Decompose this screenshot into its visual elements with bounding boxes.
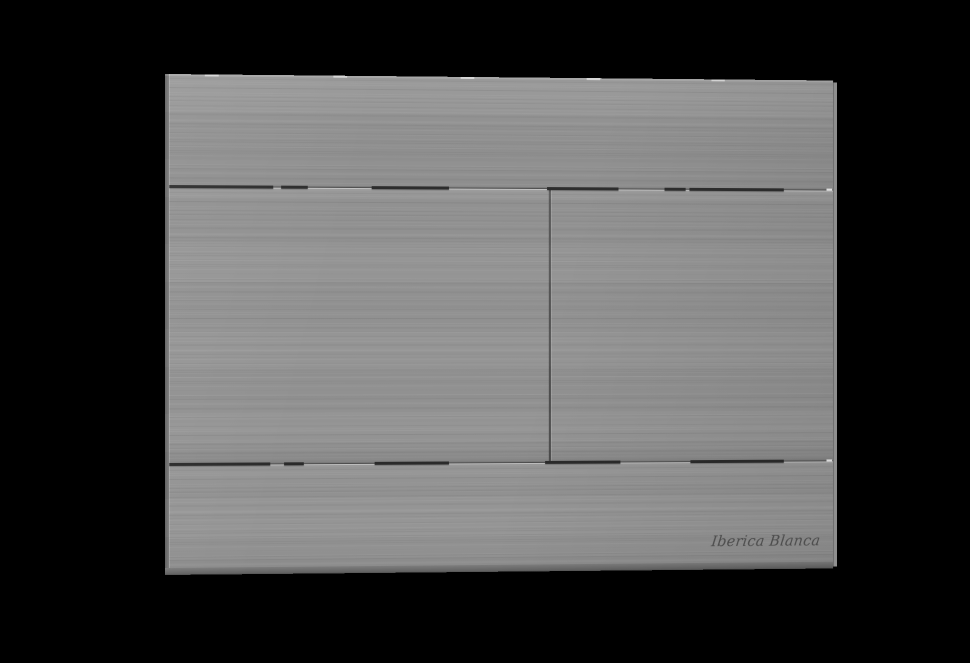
brand-logo: Iberica Blanca	[710, 532, 821, 551]
groove-gap-segment	[372, 186, 449, 189]
groove-gap-segment	[375, 461, 449, 464]
plate-top-rail	[165, 74, 833, 189]
groove-gap-segment	[167, 462, 270, 466]
plate-scene: Iberica Blanca	[165, 74, 853, 575]
groove-end-highlight	[826, 189, 832, 191]
groove-gap-segment	[545, 461, 620, 464]
groove-gap-segment	[689, 188, 783, 191]
plate-bottom-rail: Iberica Blanca	[165, 462, 833, 575]
groove-gap-segment	[169, 185, 273, 189]
button-divider-seam	[549, 190, 551, 461]
groove-gap-segment	[690, 460, 783, 463]
left-flush-button	[165, 188, 549, 463]
backdrop: Iberica Blanca	[0, 0, 970, 663]
groove-gap-segment	[284, 462, 304, 465]
flush-plate: Iberica Blanca	[165, 74, 833, 575]
groove-gap-segment	[281, 186, 308, 189]
groove-gap-segment	[547, 187, 618, 190]
groove-end-highlight	[826, 459, 832, 461]
plate-left-edge-highlight	[169, 74, 170, 575]
right-flush-button	[551, 190, 833, 461]
groove-gap-segment	[665, 188, 686, 191]
plate-right-edge	[833, 82, 837, 566]
